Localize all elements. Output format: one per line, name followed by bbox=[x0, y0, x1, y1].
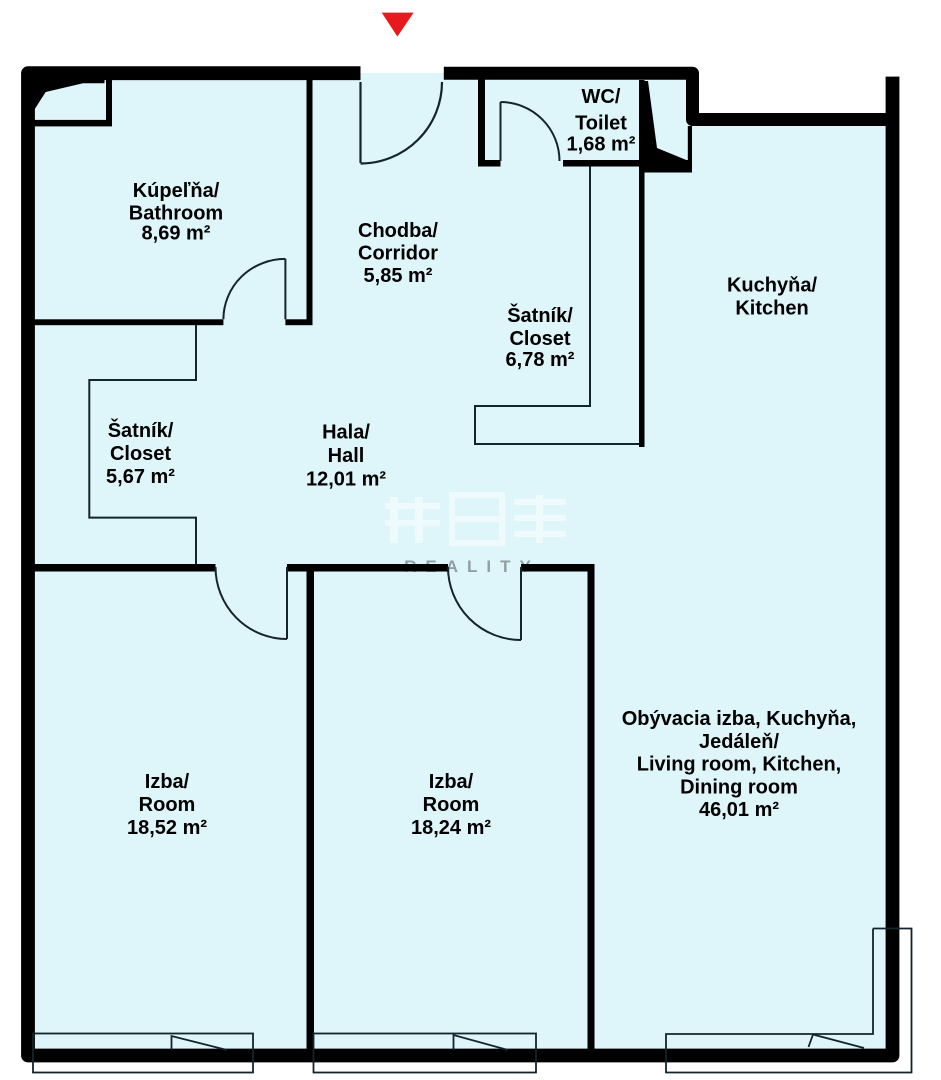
svg-text:Izba/: Izba/ bbox=[145, 771, 190, 793]
svg-text:Corridor: Corridor bbox=[358, 243, 438, 265]
svg-text:Izba/: Izba/ bbox=[429, 771, 474, 793]
svg-text:Obývacia izba, Kuchyňa,: Obývacia izba, Kuchyňa, bbox=[622, 708, 857, 730]
svg-text:Bathroom: Bathroom bbox=[129, 203, 223, 225]
svg-text:5,67 m²: 5,67 m² bbox=[106, 466, 175, 488]
svg-text:Living room, Kitchen,: Living room, Kitchen, bbox=[637, 754, 841, 776]
svg-text:12,01 m²: 12,01 m² bbox=[306, 469, 386, 491]
svg-text:Šatník/: Šatník/ bbox=[108, 418, 174, 442]
svg-text:Hall: Hall bbox=[328, 445, 365, 467]
svg-text:Closet: Closet bbox=[509, 328, 570, 350]
svg-text:Chodba/: Chodba/ bbox=[358, 220, 438, 242]
svg-text:18,24 m²: 18,24 m² bbox=[411, 817, 491, 839]
svg-text:Kitchen: Kitchen bbox=[735, 298, 808, 320]
svg-text:Kuchyňa/: Kuchyňa/ bbox=[727, 275, 817, 297]
svg-text:18,52 m²: 18,52 m² bbox=[127, 817, 207, 839]
svg-text:46,01 m²: 46,01 m² bbox=[699, 799, 779, 821]
svg-text:Closet: Closet bbox=[110, 443, 171, 465]
svg-text:Toilet: Toilet bbox=[575, 113, 627, 135]
svg-text:8,69 m²: 8,69 m² bbox=[142, 223, 211, 245]
svg-text:Room: Room bbox=[423, 794, 480, 816]
svg-text:Dining room: Dining room bbox=[680, 776, 798, 798]
svg-text:Room: Room bbox=[139, 794, 196, 816]
svg-text:Hala/: Hala/ bbox=[322, 422, 370, 444]
svg-text:WC/: WC/ bbox=[582, 86, 621, 108]
svg-text:6,78 m²: 6,78 m² bbox=[506, 349, 575, 371]
svg-text:Šatník/: Šatník/ bbox=[507, 303, 573, 327]
svg-text:Kúpeľňa/: Kúpeľňa/ bbox=[133, 180, 220, 202]
svg-text:Jedáleň/: Jedáleň/ bbox=[699, 731, 779, 753]
svg-text:5,85 m²: 5,85 m² bbox=[364, 265, 433, 287]
svg-text:1,68 m²: 1,68 m² bbox=[567, 134, 636, 156]
